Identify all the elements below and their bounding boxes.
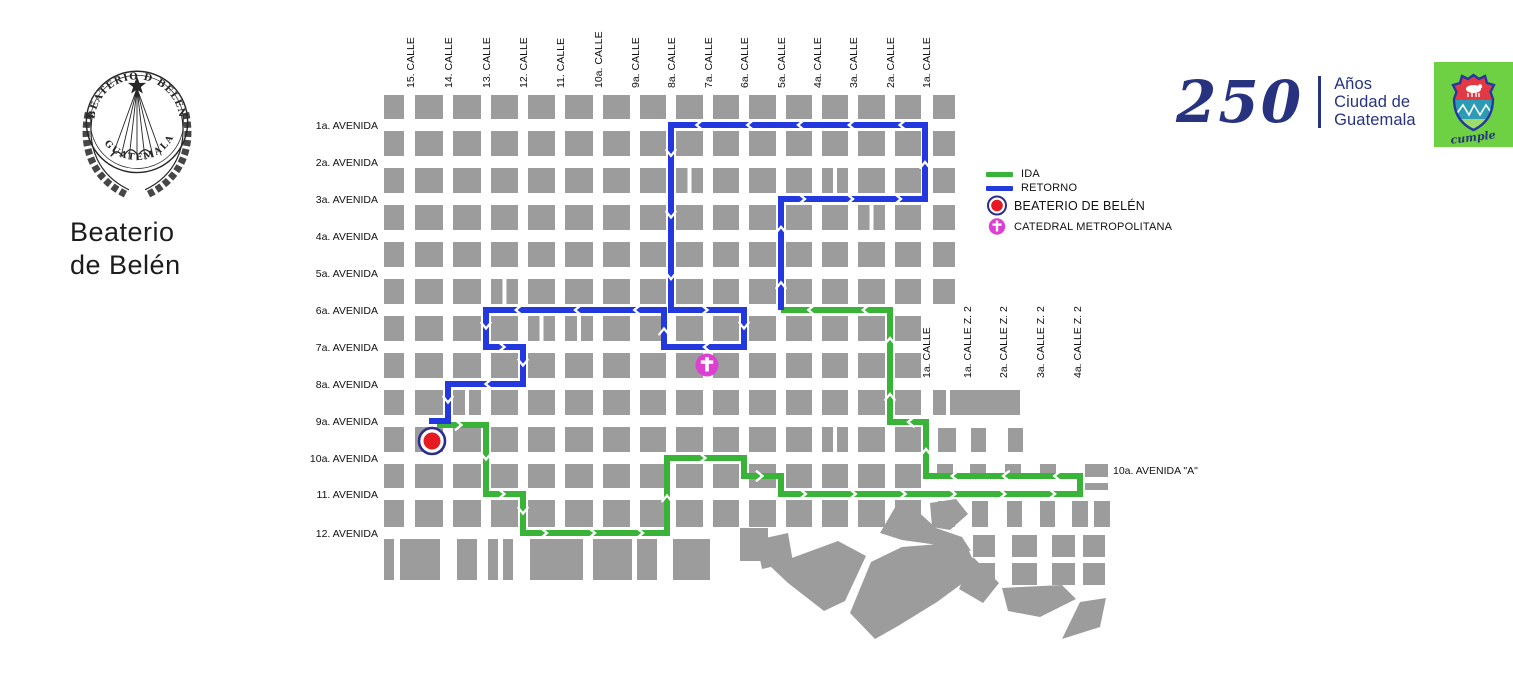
city-block <box>415 168 443 193</box>
city-block <box>749 390 776 415</box>
city-block <box>676 131 703 156</box>
logo-word-line1: Años <box>1334 75 1416 93</box>
city-block <box>673 539 710 580</box>
city-block <box>749 427 776 452</box>
city-block <box>415 242 443 267</box>
city-block <box>1008 428 1023 452</box>
city-block <box>786 279 812 304</box>
city-block <box>640 205 666 230</box>
irregular-block <box>930 499 968 530</box>
city-block <box>786 353 812 378</box>
city-block <box>603 500 630 527</box>
city-block <box>676 205 703 230</box>
city-block <box>822 205 848 230</box>
city-block <box>603 464 630 488</box>
city-block <box>938 428 956 452</box>
city-block <box>593 539 632 580</box>
east-avenue-label: 10a. AVENIDA "A" <box>1113 465 1198 477</box>
city-block <box>786 427 812 452</box>
city-block <box>1052 535 1075 557</box>
calle-label: 6a. CALLE <box>739 37 751 88</box>
city-block <box>713 95 739 119</box>
city-block <box>933 279 955 304</box>
city-block <box>786 464 812 488</box>
calle-label: 1a. CALLE <box>921 37 933 88</box>
city-block <box>933 168 955 193</box>
irregular-block <box>1062 598 1106 639</box>
irregular-block <box>1002 585 1076 617</box>
avenida-label: 10a. AVENIDA <box>310 453 378 465</box>
calle-label: 10a. CALLE <box>593 31 605 88</box>
ida-label: IDA <box>1021 168 1040 180</box>
city-block <box>457 539 477 580</box>
city-block <box>530 539 583 580</box>
city-block <box>384 390 404 415</box>
city-block <box>581 316 593 341</box>
city-block <box>603 279 630 304</box>
city-block <box>749 205 776 230</box>
city-block <box>415 353 443 378</box>
city-block <box>384 539 394 580</box>
city-block <box>749 168 776 193</box>
city-block <box>858 316 885 341</box>
city-block <box>749 95 776 119</box>
city-block <box>565 242 593 267</box>
city-block <box>384 427 404 452</box>
city-block <box>858 500 885 527</box>
city-block <box>528 353 555 378</box>
city-block <box>415 95 443 119</box>
city-block <box>822 131 848 156</box>
city-block <box>1083 563 1105 585</box>
city-block <box>640 131 666 156</box>
city-block <box>384 316 404 341</box>
city-block <box>895 131 921 156</box>
city-block <box>749 316 776 341</box>
city-block <box>895 390 921 415</box>
city-block <box>491 427 518 452</box>
beaterio-marker-icon <box>986 195 1008 216</box>
city-block <box>1094 501 1110 527</box>
avenida-label: 11. AVENIDA <box>317 489 378 501</box>
avenida-label: 8a. AVENIDA <box>316 379 378 391</box>
city-block <box>528 500 555 527</box>
city-block <box>491 279 503 304</box>
city-block <box>603 353 630 378</box>
city-block <box>603 95 630 119</box>
city-block <box>400 539 440 580</box>
city-block <box>786 205 812 230</box>
city-block <box>640 500 666 527</box>
legend-row-catedral: CATEDRAL METROPOLITANA <box>986 216 1172 237</box>
city-block <box>603 390 630 415</box>
city-block <box>491 95 518 119</box>
city-block <box>637 539 657 580</box>
city-block <box>749 242 776 267</box>
city-block <box>491 500 518 527</box>
city-block <box>858 131 885 156</box>
city-block <box>491 168 518 193</box>
city-block <box>713 131 739 156</box>
avenida-label: 12. AVENIDA <box>316 528 378 540</box>
city-block <box>895 427 921 452</box>
city-block <box>491 131 518 156</box>
city-block <box>676 390 703 415</box>
city-block <box>858 390 885 415</box>
city-block <box>415 205 443 230</box>
logo-250-number: 250 <box>1176 72 1303 132</box>
city-block <box>503 539 513 580</box>
city-block <box>950 390 1020 415</box>
city-block <box>528 205 555 230</box>
city-block <box>822 316 848 341</box>
city-block <box>713 500 739 527</box>
city-block <box>528 131 555 156</box>
calle-label: 3a. CALLE <box>848 37 860 88</box>
city-block <box>895 464 921 488</box>
avenida-label: 3a. AVENIDA <box>316 194 378 206</box>
city-block <box>895 95 921 119</box>
city-block <box>565 168 593 193</box>
city-block <box>858 279 885 304</box>
city-block <box>713 464 739 488</box>
city-block <box>415 131 443 156</box>
city-block <box>1085 464 1108 477</box>
city-block <box>874 205 886 230</box>
calle-label: 14. CALLE <box>443 37 455 88</box>
city-block <box>453 390 465 415</box>
city-block <box>453 205 481 230</box>
city-block <box>933 390 946 415</box>
city-block <box>453 427 481 452</box>
city-block <box>544 316 556 341</box>
city-block <box>528 427 555 452</box>
city-block <box>1012 563 1037 585</box>
city-block <box>858 205 870 230</box>
city-block <box>822 279 848 304</box>
city-block <box>565 131 593 156</box>
logo-divider <box>1318 76 1321 128</box>
city-block <box>491 316 518 341</box>
city-block <box>640 168 666 193</box>
city-block <box>676 500 703 527</box>
city-block <box>528 390 555 415</box>
legend-row-retorno: RETORNO <box>986 181 1172 195</box>
calle-label: 7a. CALLE <box>703 37 715 88</box>
city-block <box>565 205 593 230</box>
city-block <box>713 390 739 415</box>
city-block <box>858 95 885 119</box>
route-ida <box>437 310 1080 533</box>
city-block <box>713 316 739 341</box>
city-block <box>676 95 703 119</box>
city-block <box>786 390 812 415</box>
avenida-label: 9a. AVENIDA <box>316 416 378 428</box>
city-block <box>676 427 703 452</box>
city-block <box>749 279 776 304</box>
city-block <box>858 168 885 193</box>
city-block <box>837 427 848 452</box>
avenida-label: 5a. AVENIDA <box>316 268 378 280</box>
retorno-line-swatch <box>986 186 1013 191</box>
city-block <box>822 168 833 193</box>
zone2-calle-label: 1a. CALLE <box>921 327 933 378</box>
city-block <box>384 168 404 193</box>
city-block <box>858 427 885 452</box>
city-block <box>453 464 481 488</box>
city-block <box>528 168 555 193</box>
zone2-calle-label: 1a. CALLE Z. 2 <box>962 306 974 378</box>
catedral-marker-icon <box>986 216 1008 237</box>
zone2-calle-label: 2a. CALLE Z. 2 <box>998 306 1010 378</box>
zone2-calle-label: 4a. CALLE Z. 2 <box>1072 306 1084 378</box>
city-block <box>491 205 518 230</box>
city-block <box>565 500 593 527</box>
city-block <box>676 168 688 193</box>
city-block <box>676 279 703 304</box>
city-block <box>565 95 593 119</box>
legend-row-ida: IDA <box>986 167 1172 181</box>
city-block <box>786 131 812 156</box>
city-block <box>749 131 776 156</box>
city-block <box>384 464 404 488</box>
city-block <box>858 353 885 378</box>
city-block <box>603 131 630 156</box>
calle-label: 13. CALLE <box>481 37 493 88</box>
legend-row-beaterio: BEATERIO DE BELÉN <box>986 195 1172 216</box>
avenida-label: 1a. AVENIDA <box>316 120 378 132</box>
city-block <box>786 168 812 193</box>
city-block <box>676 316 703 341</box>
city-block <box>822 353 848 378</box>
calle-label: 8a. CALLE <box>666 37 678 88</box>
city-block <box>565 279 593 304</box>
city-block <box>640 353 666 378</box>
city-block <box>1052 563 1075 585</box>
city-block <box>1012 535 1037 557</box>
city-block <box>895 242 921 267</box>
city-block <box>603 205 630 230</box>
city-block <box>453 242 481 267</box>
city-block <box>491 390 518 415</box>
city-block <box>692 168 704 193</box>
city-block <box>973 535 995 557</box>
city-block <box>895 205 921 230</box>
city-block <box>895 168 921 193</box>
city-block <box>384 279 404 304</box>
city-block <box>1083 535 1105 557</box>
retorno-label: RETORNO <box>1021 182 1077 194</box>
city-block <box>384 205 404 230</box>
city-block <box>488 539 498 580</box>
city-block <box>384 95 404 119</box>
city-block <box>972 501 988 527</box>
city-block <box>603 242 630 267</box>
city-block <box>786 316 812 341</box>
irregular-block <box>850 542 973 639</box>
city-block <box>858 242 885 267</box>
city-block <box>415 316 443 341</box>
city-block <box>713 279 739 304</box>
city-block <box>1072 501 1088 527</box>
avenida-label: 7a. AVENIDA <box>316 342 378 354</box>
city-block <box>895 353 921 378</box>
avenida-label: 4a. AVENIDA <box>316 231 378 243</box>
beaterio-marker <box>419 428 445 454</box>
city-block <box>603 427 630 452</box>
zone2-calle-label: 3a. CALLE Z. 2 <box>1035 306 1047 378</box>
city-block <box>453 316 481 341</box>
city-block <box>507 279 519 304</box>
city-block <box>749 500 776 527</box>
city-block <box>491 353 518 378</box>
city-block <box>453 168 481 193</box>
avenida-label: 2a. AVENIDA <box>316 157 378 169</box>
city-block <box>453 500 481 527</box>
city-block <box>822 464 848 488</box>
catedral-marker <box>696 354 719 377</box>
city-block <box>565 390 593 415</box>
city-block <box>822 95 848 119</box>
city-block <box>384 131 404 156</box>
city-block <box>858 464 885 488</box>
logo-word-line2: Ciudad de <box>1334 93 1416 111</box>
city-block <box>384 242 404 267</box>
legend: IDA RETORNO BEATERIO DE BELÉN CATEDRAL M… <box>986 167 1172 237</box>
city-block <box>640 427 666 452</box>
calle-label: 12. CALLE <box>518 37 530 88</box>
logo-250-anios: 250 Años Ciudad de Guatemala <box>1176 72 1416 132</box>
city-block <box>676 464 703 488</box>
beaterio-label: BEATERIO DE BELÉN <box>1014 199 1145 213</box>
calle-label: 9a. CALLE <box>630 37 642 88</box>
calle-label: 5a. CALLE <box>776 37 788 88</box>
city-block <box>528 279 555 304</box>
calle-label: 4a. CALLE <box>812 37 824 88</box>
logo-words: Años Ciudad de Guatemala <box>1334 75 1416 129</box>
city-block <box>565 316 577 341</box>
city-block <box>415 279 443 304</box>
city-block <box>453 353 481 378</box>
city-block <box>786 500 812 527</box>
city-block <box>933 205 955 230</box>
ida-line-swatch <box>986 172 1013 177</box>
city-block <box>713 168 739 193</box>
city-block <box>1085 483 1108 490</box>
city-block <box>640 95 666 119</box>
catedral-label: CATEDRAL METROPOLITANA <box>1014 221 1172 233</box>
city-block <box>786 242 812 267</box>
city-block <box>528 95 555 119</box>
city-block <box>640 390 666 415</box>
avenida-label: 6a. AVENIDA <box>316 305 378 317</box>
city-block <box>895 316 921 341</box>
city-block <box>384 353 404 378</box>
calle-label: 2a. CALLE <box>885 37 897 88</box>
city-block <box>822 427 833 452</box>
city-block <box>640 242 666 267</box>
city-block <box>528 242 555 267</box>
city-block <box>713 427 739 452</box>
city-block <box>749 353 776 378</box>
city-block <box>640 279 666 304</box>
city-block <box>786 95 812 119</box>
city-block <box>895 279 921 304</box>
city-block <box>822 500 848 527</box>
city-block <box>528 464 555 488</box>
city-block <box>933 131 955 156</box>
city-block <box>933 95 955 119</box>
city-block <box>384 500 404 527</box>
city-block <box>491 242 518 267</box>
city-block <box>603 168 630 193</box>
city-block <box>491 464 518 488</box>
city-block <box>1007 501 1022 527</box>
city-block <box>713 205 739 230</box>
city-anniversary-badge: cumple <box>1434 62 1513 147</box>
logo-word-line3: Guatemala <box>1334 111 1416 129</box>
city-block <box>565 353 593 378</box>
calle-label: 11. CALLE <box>555 38 567 88</box>
city-block <box>415 390 443 415</box>
city-block <box>528 316 540 341</box>
city-block <box>453 131 481 156</box>
city-block <box>565 427 593 452</box>
city-block <box>469 390 481 415</box>
city-block <box>676 242 703 267</box>
city-block <box>415 500 443 527</box>
city-block <box>565 464 593 488</box>
city-block <box>822 242 848 267</box>
city-block <box>933 242 955 267</box>
city-block <box>415 464 443 488</box>
city-block <box>1040 501 1055 527</box>
calle-label: 15. CALLE <box>405 37 417 88</box>
city-block <box>713 242 739 267</box>
city-block <box>453 279 481 304</box>
city-block <box>822 390 848 415</box>
procession-map-page: BEATERIO D BELEN GUATEMALA Beaterio de B… <box>0 0 1513 686</box>
city-block <box>640 464 666 488</box>
city-block <box>453 95 481 119</box>
city-block <box>971 428 986 452</box>
city-block <box>837 168 848 193</box>
city-block <box>603 316 630 341</box>
